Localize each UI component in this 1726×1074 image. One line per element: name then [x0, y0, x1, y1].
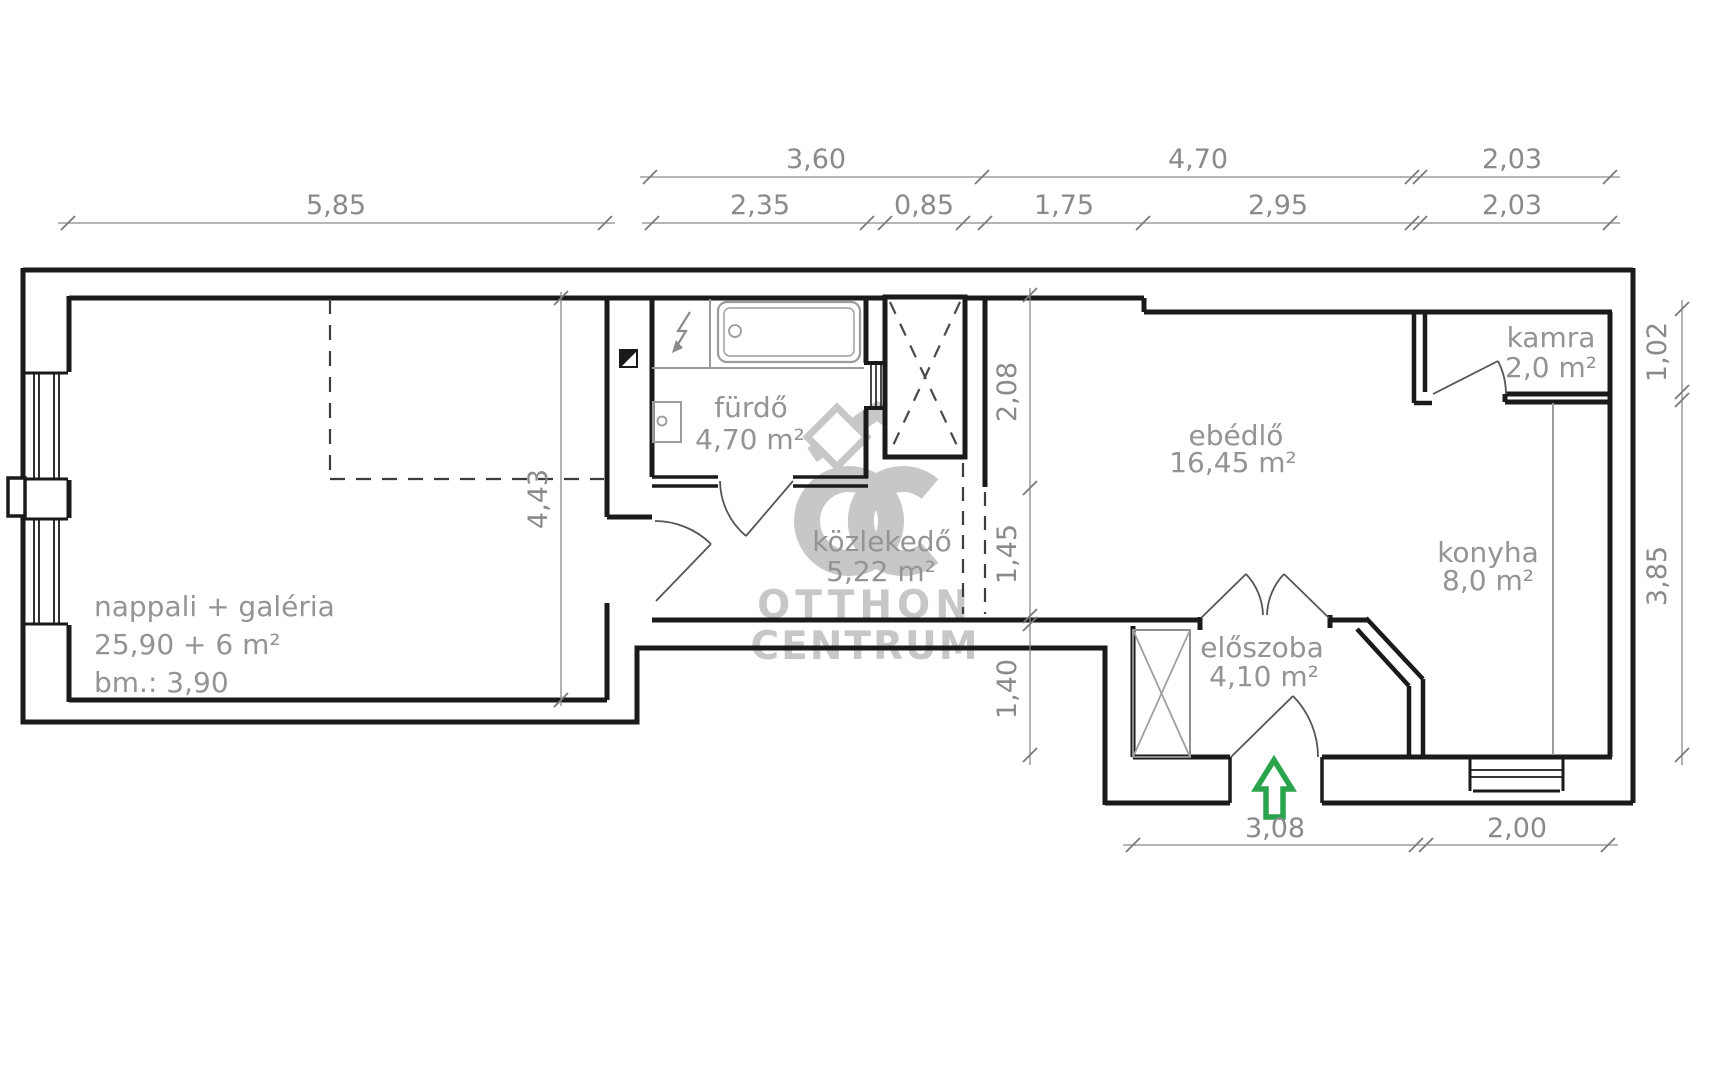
bathtub-drain-icon — [729, 325, 741, 337]
dim-2-08: 2,08 — [992, 362, 1023, 422]
flue-symbol-icon — [620, 350, 637, 367]
label-eloszoba-area: 4,10 m² — [1209, 660, 1319, 693]
dim-2-03-top: 2,03 — [1482, 144, 1542, 175]
dim-2-95: 2,95 — [1248, 190, 1308, 221]
label-kamra-area: 2,0 m² — [1505, 351, 1597, 384]
label-furdo-name: fürdő — [714, 391, 788, 424]
dim-3-60: 3,60 — [786, 144, 846, 175]
dim-1-75: 1,75 — [1034, 190, 1094, 221]
label-nappali-area: 25,90 + 6 m² — [94, 628, 281, 661]
lightning-arrowhead-icon — [672, 340, 683, 353]
window-left-lower — [24, 519, 68, 624]
dim-2-03-row2: 2,03 — [1482, 190, 1542, 221]
dim-2-00: 2,00 — [1487, 813, 1547, 844]
bathtub-inner-rim — [724, 308, 854, 356]
label-nappali-height: bm.: 3,90 — [94, 666, 229, 699]
wardrobe — [1133, 630, 1190, 757]
dim-0-85: 0,85 — [894, 190, 954, 221]
dim-4-43: 4,43 — [523, 469, 554, 529]
door-nappali — [655, 521, 711, 601]
washbasin-drain-icon — [658, 417, 667, 426]
floorplan-drawing: OTTHON CENTRUM — [0, 0, 1726, 1074]
door-entrance — [1231, 696, 1318, 757]
door-kamra — [1433, 361, 1506, 394]
door-furdo — [720, 481, 793, 536]
wall-eloszoba-konyha-diagonal — [1357, 618, 1423, 757]
wall-kamra-left — [1414, 312, 1432, 403]
gallery-dashed-outline — [330, 299, 604, 479]
label-ebedlo-area: 16,45 m² — [1169, 446, 1297, 479]
dim-1-40: 1,40 — [992, 659, 1023, 719]
entrance-arrow-icon — [1256, 760, 1292, 817]
label-furdo-area: 4,70 m² — [695, 423, 805, 456]
wall-pier-between-windows — [8, 478, 25, 516]
dim-1-45: 1,45 — [992, 524, 1023, 584]
label-nappali-name: nappali + galéria — [94, 590, 335, 623]
window-left-upper — [24, 373, 68, 479]
wall-kamra-bottom — [1505, 394, 1610, 402]
window-konyha-bottom — [1470, 757, 1563, 791]
door-double-right-leaf — [1267, 574, 1329, 618]
bathtub — [718, 302, 860, 362]
wardrobe-x-icon — [1133, 630, 1190, 757]
dim-2-35: 2,35 — [730, 190, 790, 221]
label-kamra-name: kamra — [1507, 321, 1596, 354]
label-kozlekedo-area: 5,22 m² — [826, 555, 936, 588]
label-konyha-area: 8,0 m² — [1442, 564, 1534, 597]
dim-1-02: 1,02 — [1642, 322, 1673, 382]
wall-inner-top — [69, 298, 1612, 312]
dim-4-70: 4,70 — [1168, 144, 1228, 175]
dim-3-08: 3,08 — [1245, 813, 1305, 844]
door-double-left-leaf — [1201, 574, 1263, 618]
dimension-labels: 3,60 4,70 2,03 5,85 2,35 0,85 1,75 2,95 … — [306, 144, 1673, 844]
floorplan-page: OTTHON CENTRUM — [0, 0, 1726, 1074]
label-kozlekedo-name: közlekedő — [812, 525, 951, 558]
dim-5-85: 5,85 — [306, 190, 366, 221]
dim-3-85: 3,85 — [1642, 546, 1673, 606]
shaft — [885, 297, 965, 457]
